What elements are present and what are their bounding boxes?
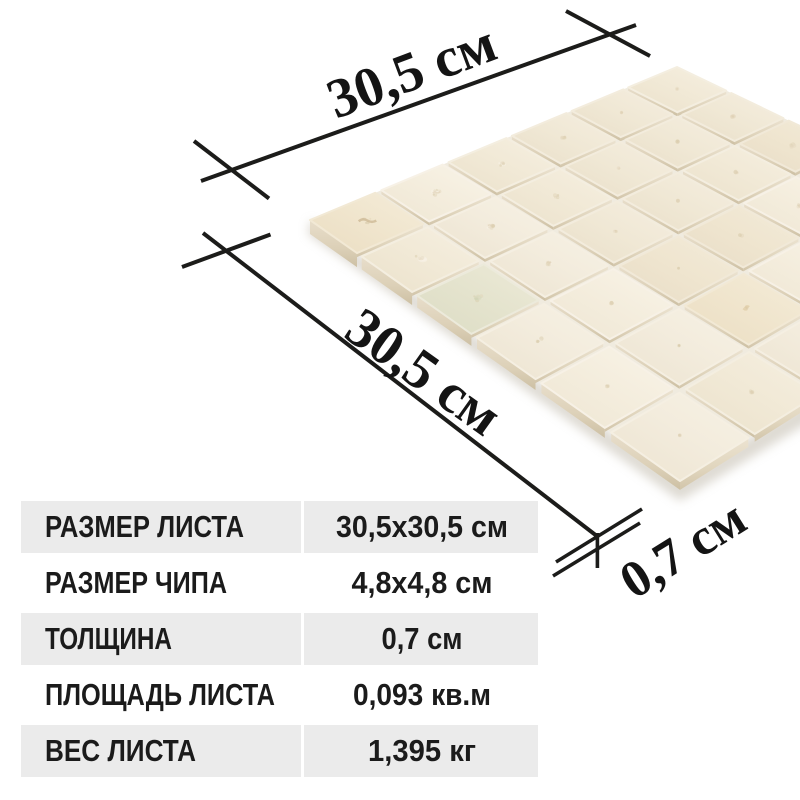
svg-text:ВЕС ЛИСТА: ВЕС ЛИСТА bbox=[45, 733, 196, 768]
svg-text:ПЛОЩАДЬ ЛИСТА: ПЛОЩАДЬ ЛИСТА bbox=[45, 677, 275, 712]
svg-text:РАЗМЕР ЛИСТА: РАЗМЕР ЛИСТА bbox=[45, 509, 244, 544]
svg-text:ТОЛЩИНА: ТОЛЩИНА bbox=[45, 621, 172, 656]
svg-text:4,8x4,8 см: 4,8x4,8 см bbox=[352, 565, 493, 600]
svg-text:0,7 см: 0,7 см bbox=[610, 490, 756, 611]
svg-text:РАЗМЕР ЧИПА: РАЗМЕР ЧИПА bbox=[45, 565, 227, 600]
svg-text:0,093 кв.м: 0,093 кв.м bbox=[353, 677, 491, 712]
svg-text:30,5x30,5 см: 30,5x30,5 см bbox=[336, 509, 508, 544]
svg-text:30,5 см: 30,5 см bbox=[319, 12, 505, 131]
svg-text:0,7 см: 0,7 см bbox=[382, 621, 463, 656]
svg-text:1,395 кг: 1,395 кг bbox=[368, 733, 476, 768]
